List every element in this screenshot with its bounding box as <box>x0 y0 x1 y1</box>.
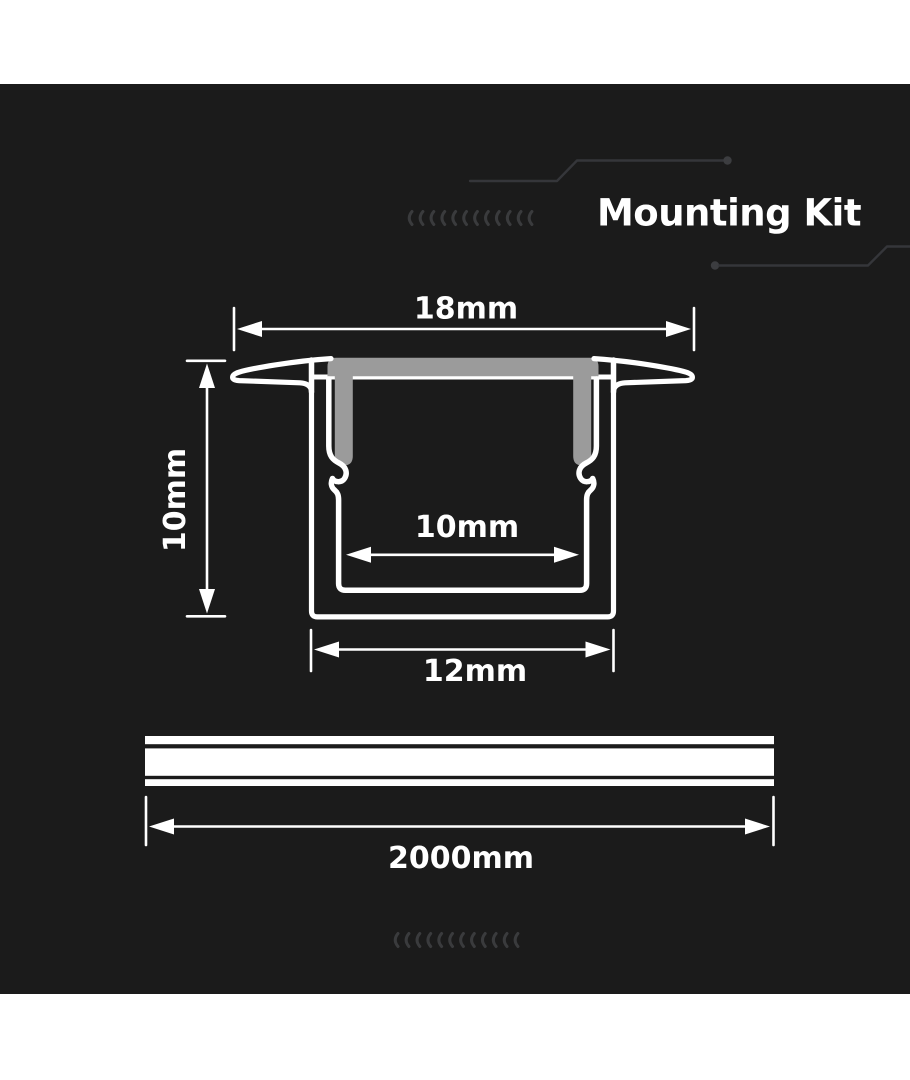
bar-bottom-strip <box>145 779 774 786</box>
circuit-node-dot <box>723 156 731 164</box>
product-image: Mounting Kit 18mm 10mm <box>0 0 910 1080</box>
dimension-label-bottom-width: 12mm <box>423 654 527 689</box>
dimension-label-inner-width: 10mm <box>415 510 519 545</box>
page-title: Mounting Kit <box>597 192 861 235</box>
dimension-label-height: 10mm <box>158 448 193 552</box>
diffuser-left-leg <box>335 371 353 466</box>
dimension-label-top-width: 18mm <box>414 292 518 327</box>
dimension-label-length: 2000mm <box>388 841 534 876</box>
diffuser-top-bar <box>328 358 599 376</box>
diffuser-right-leg <box>573 371 591 466</box>
bar-middle-strip <box>145 748 774 775</box>
diagram-canvas: Mounting Kit 18mm 10mm <box>0 0 910 1080</box>
bar-top-strip <box>145 736 774 744</box>
